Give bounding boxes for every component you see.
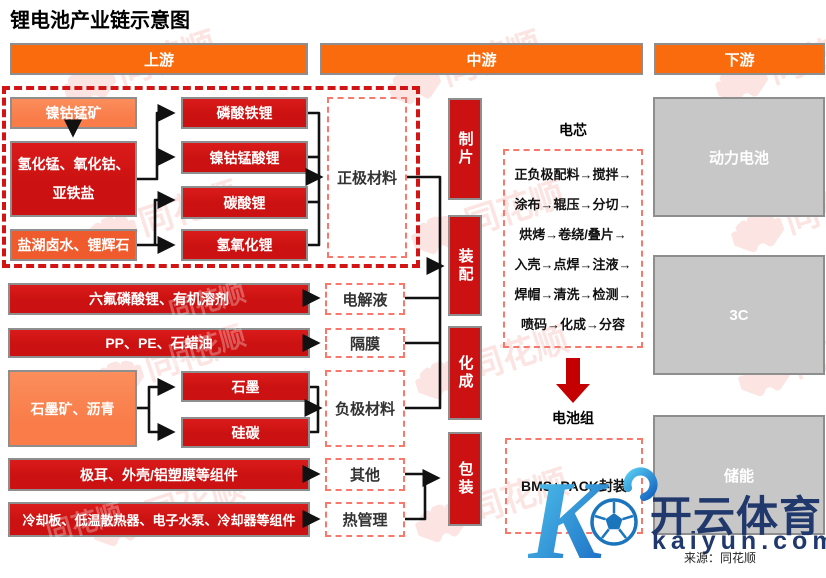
bar-separator-sources: PP、PE、石蜡油 xyxy=(8,328,310,358)
industry-chain-diagram: 同花顺同花顺同花顺同花顺同花顺同花顺同花顺同花顺同花顺同花顺同花顺 锂电池产业链… xyxy=(0,0,826,578)
box-lfp: 磷酸铁锂 xyxy=(181,97,308,129)
cell-step-line: 入壳→点焊→注液→ xyxy=(507,254,639,273)
box-brine-spodumene: 盐湖卤水、锂辉石 xyxy=(10,229,137,261)
cell-section-label: 电芯 xyxy=(503,120,643,140)
header-upstream: 上游 xyxy=(10,43,308,75)
box-nickel-cobalt-manganese-ore: 镍钴锰矿 xyxy=(10,97,137,129)
pack-section-label: 电池组 xyxy=(503,408,643,428)
header-downstream: 下游 xyxy=(654,43,825,75)
box-precursor-salts: 氢化锰、氧化钴、亚铁盐 xyxy=(10,141,137,217)
cell-step-line: 涂布→辊压→分切→ xyxy=(507,194,639,213)
bar-other-components: 极耳、外壳/铝塑膜等组件 xyxy=(8,458,310,491)
header-midstream: 中游 xyxy=(320,43,643,75)
box-lithium-hydroxide: 氢氧化锂 xyxy=(181,229,308,261)
process-assembly: 装配 xyxy=(448,215,482,316)
box-separator: 隔膜 xyxy=(325,328,405,358)
cell-step-line: 烘烤→卷绕/叠片→ xyxy=(507,224,639,243)
cell-process-box: 正负极配料→搅拌→ 涂布→辊压→分切→ 烘烤→卷绕/叠片→ 入壳→点焊→注液→ … xyxy=(503,149,643,348)
box-others: 其他 xyxy=(325,458,405,491)
bar-electrolyte-sources: 六氟磷酸锂、有机溶剂 xyxy=(8,283,310,315)
bar-thermal-components: 冷却板、低温散热器、电子水泵、冷却器等组件 xyxy=(8,502,310,537)
process-electrode-making: 制片 xyxy=(448,98,482,200)
red-down-arrow xyxy=(556,358,590,403)
cell-step-line: 喷码→化成→分容 xyxy=(507,314,639,333)
box-electrolyte: 电解液 xyxy=(325,283,405,315)
box-graphite-ore-pitch: 石墨矿、沥青 xyxy=(8,370,137,447)
box-power-battery: 动力电池 xyxy=(653,97,825,217)
box-lithium-carbonate: 碳酸锂 xyxy=(181,186,308,219)
box-ncm: 镍钴锰酸锂 xyxy=(181,141,308,174)
box-3c: 3C xyxy=(653,255,825,375)
cell-step-line: 焊帽→清洗→检测→ xyxy=(507,284,639,303)
process-formation: 化成 xyxy=(448,326,482,420)
cell-step-line: 正负极配料→搅拌→ xyxy=(507,164,639,183)
box-graphite: 石墨 xyxy=(181,371,310,402)
box-cathode-material: 正极材料 xyxy=(327,97,407,258)
box-thermal-management: 热管理 xyxy=(325,502,405,537)
process-packaging: 包装 xyxy=(448,432,482,526)
source-caption: 来源：同花顺 xyxy=(684,549,756,566)
box-silicon-carbon: 硅碳 xyxy=(181,417,310,448)
box-anode-material: 负极材料 xyxy=(325,370,405,447)
page-title: 锂电池产业链示意图 xyxy=(10,4,190,33)
bms-pack-box: BMS+PACK封装 xyxy=(505,438,643,534)
